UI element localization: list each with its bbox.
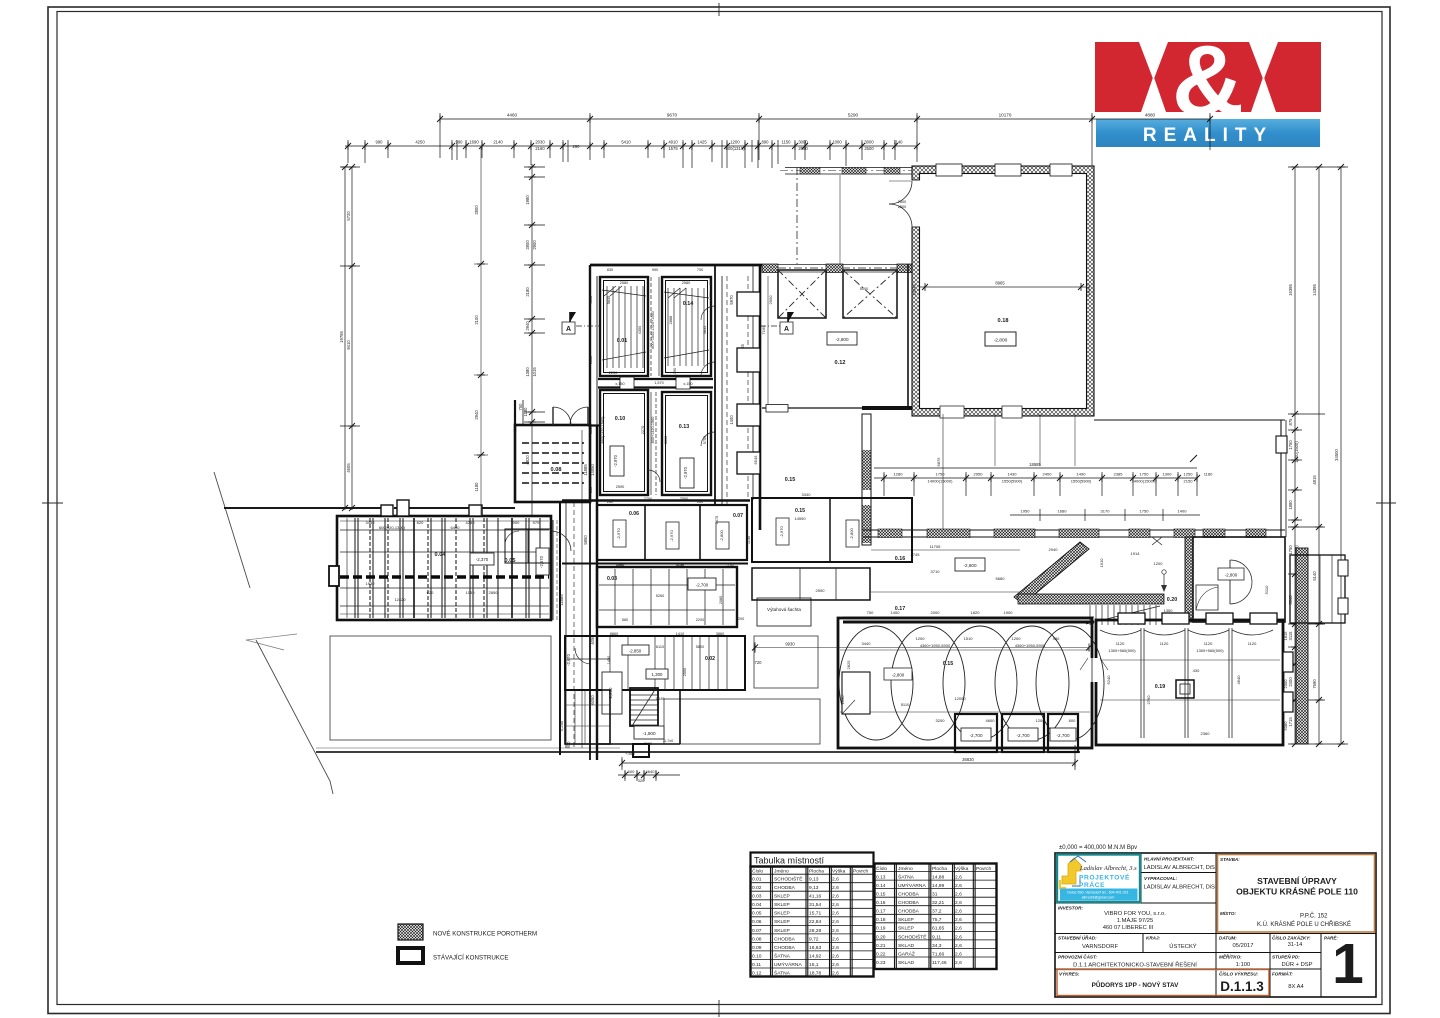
svg-text:2300: 2300 <box>1283 679 1288 689</box>
svg-text:2850: 2850 <box>489 590 499 595</box>
svg-text:9930: 9930 <box>785 642 795 647</box>
svg-text:STAVBA:: STAVBA: <box>1220 857 1240 862</box>
svg-text:Číslo: Číslo <box>752 867 763 874</box>
svg-text:-2,700: -2,700 <box>1016 733 1029 738</box>
svg-text:x,150: x,150 <box>615 382 624 386</box>
svg-text:-730: -730 <box>726 563 734 567</box>
svg-text:SKLEP: SKLEP <box>898 917 914 923</box>
svg-text:2940: 2940 <box>525 321 530 331</box>
svg-text:2,6: 2,6 <box>832 894 839 900</box>
svg-text:700: 700 <box>697 268 703 272</box>
svg-text:14590: 14590 <box>794 516 806 521</box>
svg-text:0.20: 0.20 <box>1167 597 1178 603</box>
svg-text:0.17: 0.17 <box>876 909 886 915</box>
svg-text:3150: 3150 <box>676 563 684 567</box>
svg-text:1015: 1015 <box>532 367 537 377</box>
svg-text:1,185: 1,185 <box>655 697 665 701</box>
svg-text:2825: 2825 <box>846 660 851 670</box>
svg-text:1880: 1880 <box>1288 500 1293 510</box>
svg-text:1350: 1350 <box>1164 608 1174 613</box>
svg-text:SKLEP: SKLEP <box>774 911 790 917</box>
svg-text:D.1.1.3: D.1.1.3 <box>1220 979 1264 994</box>
svg-text:2800: 2800 <box>474 205 479 215</box>
svg-text:ČÍSLO ZAKÁZKY:: ČÍSLO ZAKÁZKY: <box>1272 934 1311 941</box>
svg-text:0.05: 0.05 <box>752 911 762 917</box>
svg-text:1690: 1690 <box>469 140 479 145</box>
svg-text:3170: 3170 <box>1101 509 1111 514</box>
svg-text:620: 620 <box>417 520 424 525</box>
svg-text:DATUM:: DATUM: <box>1219 936 1237 941</box>
svg-text:117,46: 117,46 <box>932 960 947 966</box>
svg-text:14,99: 14,99 <box>932 883 945 889</box>
svg-text:41,16: 41,16 <box>809 894 822 900</box>
svg-text:Tabulka místností: Tabulka místností <box>754 856 825 866</box>
svg-text:1380: 1380 <box>525 367 530 377</box>
svg-text:05/2017: 05/2017 <box>1233 943 1254 949</box>
svg-text:5720: 5720 <box>346 211 351 221</box>
svg-text:0.01: 0.01 <box>617 338 628 344</box>
svg-text:SKLEP: SKLEP <box>774 928 790 934</box>
svg-text:6545: 6545 <box>753 455 758 465</box>
svg-text:900: 900 <box>709 279 713 285</box>
svg-text:D.1.1 ARCHITEKTONICKO-STAVEBNÍ: D.1.1 ARCHITEKTONICKO-STAVEBNÍ ŘEŠENÍ <box>1073 961 1197 969</box>
svg-text:+,660: +,660 <box>625 752 635 756</box>
svg-text:UMÝVÁRNA: UMÝVÁRNA <box>774 961 802 968</box>
svg-text:2200: 2200 <box>736 617 744 621</box>
svg-text:5835: 5835 <box>703 326 707 334</box>
svg-text:2,6: 2,6 <box>832 919 839 925</box>
svg-text:-1,900: -1,900 <box>642 731 655 736</box>
svg-text:2,6: 2,6 <box>832 885 839 891</box>
svg-text:460 07 LIBEREC III: 460 07 LIBEREC III <box>1103 925 1154 931</box>
svg-text:3440: 3440 <box>862 641 872 646</box>
svg-text:-2,670: -2,670 <box>539 555 544 568</box>
svg-text:875: 875 <box>1288 418 1293 426</box>
svg-text:9,11: 9,11 <box>932 934 941 940</box>
svg-text:CHODBA: CHODBA <box>774 945 796 951</box>
svg-text:MĚŘÍTKO:: MĚŘÍTKO: <box>1219 953 1242 960</box>
svg-text:12420: 12420 <box>394 597 406 602</box>
svg-text:2,6: 2,6 <box>955 900 962 906</box>
svg-text:1575: 1575 <box>668 146 678 151</box>
svg-text:2,6: 2,6 <box>955 943 962 949</box>
svg-text:2900: 2900 <box>768 295 773 305</box>
svg-text:34,3: 34,3 <box>932 943 942 949</box>
svg-text:2,6: 2,6 <box>955 951 962 957</box>
svg-text:1180: 1180 <box>1204 472 1213 477</box>
svg-text:2,6: 2,6 <box>832 945 839 951</box>
svg-text:2,6: 2,6 <box>955 960 962 966</box>
svg-text:0.15: 0.15 <box>876 892 886 898</box>
svg-text:2760: 2760 <box>1146 695 1151 705</box>
svg-text:-2,800: -2,800 <box>994 338 1008 344</box>
svg-text:4815: 4815 <box>1312 475 1317 485</box>
svg-text:4880: 4880 <box>1145 113 1156 118</box>
svg-text:PRÁCE: PRÁCE <box>1079 880 1105 889</box>
svg-text:0.12: 0.12 <box>835 360 846 366</box>
svg-text:18585: 18585 <box>1029 462 1041 467</box>
svg-text:31,54: 31,54 <box>809 902 822 908</box>
svg-text:2,6: 2,6 <box>832 970 839 976</box>
svg-text:1.MÁJE 97/25: 1.MÁJE 97/25 <box>1117 917 1153 924</box>
svg-text:CHODBA: CHODBA <box>774 885 796 891</box>
svg-text:2580: 2580 <box>682 281 690 285</box>
svg-text:5970: 5970 <box>729 295 734 305</box>
svg-text:1900: 1900 <box>1004 610 1014 615</box>
svg-text:4460: 4460 <box>507 113 518 118</box>
svg-text:2900: 2900 <box>532 240 537 250</box>
svg-text:71,66: 71,66 <box>932 951 945 957</box>
svg-text:5140: 5140 <box>1312 571 1317 581</box>
svg-text:Číslo: Číslo <box>876 865 887 872</box>
svg-text:ÚSTECKÝ: ÚSTECKÝ <box>1169 943 1197 950</box>
svg-text:2,6: 2,6 <box>955 909 962 915</box>
svg-text:Ladislav Albrecht, 3.s: Ladislav Albrecht, 3.s <box>1079 865 1137 872</box>
svg-text:STAVEBNÍ ÚŘAD:: STAVEBNÍ ÚŘAD: <box>1058 934 1097 941</box>
svg-text:750: 750 <box>867 610 874 615</box>
svg-text:2940: 2940 <box>474 410 479 420</box>
svg-text:0.15: 0.15 <box>943 661 954 667</box>
svg-text:STAVEBNÍ ÚPRAVY: STAVEBNÍ ÚPRAVY <box>1257 875 1337 886</box>
svg-text:3450: 3450 <box>366 520 376 525</box>
svg-text:990: 990 <box>652 268 658 272</box>
svg-text:9,72: 9,72 <box>809 936 819 942</box>
svg-text:1180: 1180 <box>523 407 528 417</box>
svg-text:-2,970: -2,970 <box>669 530 674 542</box>
svg-text:0.01: 0.01 <box>752 877 762 883</box>
svg-text:0.18: 0.18 <box>998 318 1009 324</box>
svg-text:6240: 6240 <box>1106 675 1111 685</box>
svg-text:1280: 1280 <box>894 472 904 477</box>
svg-text:620: 620 <box>427 590 434 595</box>
svg-text:11885: 11885 <box>583 464 588 476</box>
svg-text:3340: 3340 <box>802 492 812 497</box>
svg-text:0.10: 0.10 <box>615 416 626 422</box>
svg-text:6875: 6875 <box>936 457 941 467</box>
svg-text:800+1500-1420+1560: 800+1500-1420+1560 <box>651 311 655 348</box>
svg-text:2500: 2500 <box>864 146 874 151</box>
svg-text:1,570: 1,570 <box>654 381 664 385</box>
svg-text:2385: 2385 <box>1114 472 1124 477</box>
svg-text:1715: 1715 <box>1288 717 1293 727</box>
svg-text:2030: 2030 <box>535 140 545 145</box>
svg-text:0.22: 0.22 <box>876 951 886 957</box>
svg-text:36830: 36830 <box>962 757 974 762</box>
svg-text:ŠATNA: ŠATNA <box>774 969 791 976</box>
svg-text:0.18: 0.18 <box>876 917 886 923</box>
svg-text:15,1: 15,1 <box>809 962 819 968</box>
svg-text:0.14: 0.14 <box>876 883 886 889</box>
svg-text:5410: 5410 <box>621 140 631 145</box>
svg-text:1:100: 1:100 <box>1236 962 1251 968</box>
svg-text:2200: 2200 <box>696 618 704 622</box>
svg-text:Plocha: Plocha <box>932 866 947 872</box>
svg-text:-2,800: -2,800 <box>892 673 905 678</box>
svg-text:4250: 4250 <box>415 140 425 145</box>
svg-text:STÁVAJÍCÍ KONSTRUKCE: STÁVAJÍCÍ KONSTRUKCE <box>433 955 509 962</box>
svg-text:1150: 1150 <box>781 140 791 145</box>
svg-text:UMÝVÁRNA: UMÝVÁRNA <box>898 882 926 889</box>
svg-text:2590: 2590 <box>798 146 808 151</box>
svg-text:2590: 2590 <box>616 563 624 567</box>
svg-text:5800: 5800 <box>696 645 704 649</box>
svg-text:1120: 1120 <box>1248 641 1257 646</box>
svg-text:0.07: 0.07 <box>752 928 762 934</box>
svg-text:CHODBA: CHODBA <box>774 936 796 942</box>
svg-text:1830: 1830 <box>589 356 593 364</box>
svg-text:5290: 5290 <box>848 113 859 118</box>
svg-text:1400: 1400 <box>891 610 901 615</box>
svg-text:320: 320 <box>638 778 645 783</box>
svg-text:A: A <box>784 326 789 333</box>
svg-text:2400: 2400 <box>1043 472 1053 477</box>
svg-text:0.19: 0.19 <box>1155 684 1166 690</box>
svg-text:6310: 6310 <box>589 426 593 434</box>
svg-text:A: A <box>566 326 571 333</box>
svg-text:1200: 1200 <box>1154 561 1164 566</box>
svg-text:SKLEP: SKLEP <box>774 919 790 925</box>
svg-text:NOVÉ KONSTRUKCE POROTHERM: NOVÉ KONSTRUKCE POROTHERM <box>433 931 537 938</box>
svg-text:K.Ú. KRÁSNÉ POLE U CHŘIBSKÉ: K.Ú. KRÁSNÉ POLE U CHŘIBSKÉ <box>1257 920 1351 928</box>
svg-text:1425: 1425 <box>697 140 707 145</box>
svg-text:19795: 19795 <box>339 331 344 343</box>
svg-text:ŠATNA: ŠATNA <box>898 873 915 880</box>
svg-text:800+1420-1560: 800+1420-1560 <box>651 417 655 444</box>
svg-text:FORMÁT:: FORMÁT: <box>1272 971 1293 977</box>
svg-text:2,6: 2,6 <box>955 892 962 898</box>
svg-text:-2,700: -2,700 <box>969 733 982 738</box>
svg-text:0.02: 0.02 <box>705 656 715 662</box>
svg-text:0.04: 0.04 <box>752 902 762 908</box>
svg-text:HLAVNÍ PROJEKTANT:: HLAVNÍ PROJEKTANT: <box>1144 856 1194 862</box>
svg-text:2080: 2080 <box>719 596 723 604</box>
svg-text:1000(1500): 1000(1500) <box>1294 441 1299 463</box>
svg-text:5835: 5835 <box>607 296 611 304</box>
svg-text:0.09: 0.09 <box>752 945 762 951</box>
svg-text:-2,850: -2,850 <box>629 649 642 654</box>
svg-text:0.20: 0.20 <box>876 934 886 940</box>
svg-text:8965: 8965 <box>995 281 1005 286</box>
svg-text:4600: 4600 <box>986 718 996 723</box>
svg-text:0.13: 0.13 <box>876 874 886 880</box>
svg-text:LADISLAV ALBRECHT, DiS: LADISLAV ALBRECHT, DiS <box>1144 865 1216 871</box>
svg-text:2,6: 2,6 <box>955 883 962 889</box>
svg-text:2,6: 2,6 <box>832 928 839 934</box>
svg-text:1200: 1200 <box>1012 636 1022 641</box>
svg-text:OBJEKTU KRÁSNÉ POLE 110: OBJEKTU KRÁSNÉ POLE 110 <box>1236 887 1358 897</box>
svg-text:1815: 1815 <box>1283 631 1288 641</box>
svg-text:Plocha: Plocha <box>809 868 824 874</box>
svg-text:0.03: 0.03 <box>752 894 762 900</box>
svg-text:900: 900 <box>513 520 520 525</box>
svg-text:Povrch: Povrch <box>976 866 992 872</box>
svg-text:10170: 10170 <box>999 113 1012 118</box>
svg-text:14000(15000): 14000(15000) <box>1132 479 1158 484</box>
svg-text:VARNSDORF: VARNSDORF <box>1082 944 1118 950</box>
svg-text:0.06: 0.06 <box>629 511 639 517</box>
svg-text:12050: 12050 <box>954 696 966 701</box>
svg-text:16,63: 16,63 <box>809 945 822 951</box>
svg-text:2180: 2180 <box>525 287 530 297</box>
svg-text:75,7: 75,7 <box>932 917 942 923</box>
svg-text:CHODBA: CHODBA <box>898 900 920 906</box>
svg-text:-2,700: -2,700 <box>696 583 709 588</box>
svg-text:0.14: 0.14 <box>683 301 694 307</box>
svg-text:0.21: 0.21 <box>876 943 886 949</box>
svg-text:4640: 4640 <box>1236 675 1241 685</box>
svg-text:37,2: 37,2 <box>932 909 942 915</box>
svg-text:1300: 1300 <box>1163 472 1173 477</box>
svg-text:1950: 1950 <box>1021 509 1031 514</box>
svg-text:9410: 9410 <box>346 340 351 350</box>
svg-text:5110: 5110 <box>901 702 910 707</box>
svg-text:1140: 1140 <box>893 140 903 145</box>
svg-text:1450: 1450 <box>709 292 713 300</box>
svg-text:1400: 1400 <box>729 415 734 425</box>
svg-text:5080: 5080 <box>1283 721 1288 731</box>
svg-text:980: 980 <box>1053 636 1060 641</box>
svg-text:ŠATNA: ŠATNA <box>774 952 791 959</box>
svg-text:1120: 1120 <box>1204 641 1213 646</box>
svg-text:PROJEKTOVÉ: PROJEKTOVÉ <box>1079 873 1130 882</box>
svg-text:6400: 6400 <box>451 525 461 530</box>
svg-text:1750: 1750 <box>1288 440 1293 450</box>
svg-text:8860: 8860 <box>610 632 618 636</box>
svg-text:2600: 2600 <box>644 742 652 746</box>
svg-text:-1,7x0: -1,7x0 <box>663 739 674 743</box>
svg-text:6050: 6050 <box>590 695 595 705</box>
svg-text:1930: 1930 <box>366 581 376 586</box>
svg-text:0.10: 0.10 <box>752 953 762 959</box>
svg-text:2590: 2590 <box>816 588 826 593</box>
svg-text:-2,970: -2,970 <box>683 466 688 479</box>
svg-text:5260: 5260 <box>656 594 664 598</box>
svg-text:2,6: 2,6 <box>832 902 839 908</box>
svg-text:2,6: 2,6 <box>832 953 839 959</box>
svg-text:0.23: 0.23 <box>876 960 886 966</box>
svg-text:0.19: 0.19 <box>876 926 886 932</box>
svg-text:3000: 3000 <box>798 140 808 145</box>
svg-text:0.15: 0.15 <box>795 508 805 514</box>
svg-text:SKLEP: SKLEP <box>898 926 914 932</box>
svg-text:1120: 1120 <box>1116 641 1125 646</box>
svg-text:2,6: 2,6 <box>955 926 962 932</box>
svg-text:0.08: 0.08 <box>752 936 762 942</box>
svg-text:9,13: 9,13 <box>809 885 819 891</box>
svg-text:1430: 1430 <box>1008 472 1018 477</box>
svg-text:13140: 13140 <box>1086 284 1091 296</box>
svg-text:1680: 1680 <box>1058 509 1068 514</box>
svg-text:CHODBA: CHODBA <box>898 892 920 898</box>
svg-text:14000(15000): 14000(15000) <box>928 479 954 484</box>
svg-text:5680: 5680 <box>996 576 1006 581</box>
svg-text:600: 600 <box>628 769 635 774</box>
svg-text:VYPRACOVAL:: VYPRACOVAL: <box>1144 876 1178 881</box>
svg-text:1250: 1250 <box>1184 472 1194 477</box>
svg-text:Jméno: Jméno <box>774 868 789 874</box>
svg-text:-2,800: -2,800 <box>1225 573 1238 578</box>
svg-text:600(920-1300): 600(920-1300) <box>379 525 406 530</box>
svg-text:18,78: 18,78 <box>809 970 822 976</box>
svg-text:1475: 1475 <box>715 516 719 524</box>
svg-text:9,13: 9,13 <box>809 877 819 883</box>
svg-text:6110: 6110 <box>656 645 664 649</box>
svg-text:2790: 2790 <box>644 497 652 501</box>
svg-text:22,84: 22,84 <box>809 919 822 925</box>
svg-text:0.12: 0.12 <box>752 970 762 976</box>
svg-text:1980: 1980 <box>525 195 530 205</box>
svg-text:Výtahová šachta: Výtahová šachta <box>767 607 801 612</box>
svg-text:SKLAD: SKLAD <box>898 943 915 949</box>
svg-text:0,250: 0,250 <box>559 720 564 731</box>
svg-text:5850: 5850 <box>583 535 588 545</box>
svg-text:3860: 3860 <box>716 632 724 636</box>
svg-text:310: 310 <box>589 487 593 493</box>
svg-text:260: 260 <box>607 500 613 504</box>
svg-text:4605: 4605 <box>346 463 351 473</box>
svg-text:5000: 5000 <box>860 287 868 291</box>
svg-text:15,71: 15,71 <box>809 911 822 917</box>
svg-text:ČÍSLO VÝKRESU:: ČÍSLO VÝKRESU: <box>1219 970 1259 977</box>
svg-text:4910: 4910 <box>668 140 678 145</box>
svg-text:P.P.Č. 152: P.P.Č. 152 <box>1300 913 1328 920</box>
svg-text:-2,700: -2,700 <box>1056 733 1069 738</box>
svg-text:0.11: 0.11 <box>752 962 761 968</box>
svg-text:11885: 11885 <box>559 594 564 606</box>
svg-text:260: 260 <box>697 500 703 504</box>
svg-text:2,6: 2,6 <box>832 962 839 968</box>
svg-text:2500: 2500 <box>898 205 906 209</box>
svg-text:DÚR + DSP: DÚR + DSP <box>1281 961 1312 968</box>
svg-text:INVESTOR:: INVESTOR: <box>1058 906 1083 911</box>
svg-text:13140: 13140 <box>912 284 917 296</box>
svg-text:Jméno: Jméno <box>898 866 913 872</box>
svg-text:1000: 1000 <box>832 140 842 145</box>
svg-text:2,6: 2,6 <box>955 934 962 940</box>
svg-text:0.03: 0.03 <box>607 576 617 582</box>
svg-text:Povrch: Povrch <box>853 868 869 874</box>
svg-text:14050: 14050 <box>590 464 595 476</box>
svg-text:3000: 3000 <box>864 140 874 145</box>
svg-text:VÝKRES:: VÝKRES: <box>1059 971 1080 977</box>
svg-text:2888: 2888 <box>669 316 673 324</box>
svg-text:-2,800: -2,800 <box>835 337 848 342</box>
svg-text:14395: 14395 <box>1312 284 1317 296</box>
svg-text:2550: 2550 <box>683 668 687 676</box>
svg-text:2,6: 2,6 <box>955 874 962 880</box>
svg-text:2160: 2160 <box>535 146 545 151</box>
svg-text:1120: 1120 <box>1160 641 1169 646</box>
svg-text:5110: 5110 <box>1264 585 1269 594</box>
svg-text:1750: 1750 <box>1288 545 1293 555</box>
svg-text:5750: 5750 <box>703 436 707 444</box>
svg-text:2000: 2000 <box>931 610 941 615</box>
svg-text:1300+560(500): 1300+560(500) <box>1196 648 1224 653</box>
svg-text:SKLEP: SKLEP <box>774 894 790 900</box>
svg-text:STUPEŇ PD:: STUPEŇ PD: <box>1272 954 1300 960</box>
svg-text:1750: 1750 <box>1140 472 1150 477</box>
svg-text:1490: 1490 <box>1077 472 1087 477</box>
svg-text:720: 720 <box>755 660 763 665</box>
svg-text:990: 990 <box>456 140 464 145</box>
svg-text:8X A4: 8X A4 <box>1288 984 1304 990</box>
svg-text:-2,670: -2,670 <box>566 653 571 666</box>
svg-text:2,6: 2,6 <box>955 917 962 923</box>
svg-text:1,300: 1,300 <box>652 672 664 677</box>
svg-text:0.02: 0.02 <box>752 885 762 891</box>
svg-text:2590: 2590 <box>616 485 624 489</box>
svg-text:2580: 2580 <box>620 281 628 285</box>
